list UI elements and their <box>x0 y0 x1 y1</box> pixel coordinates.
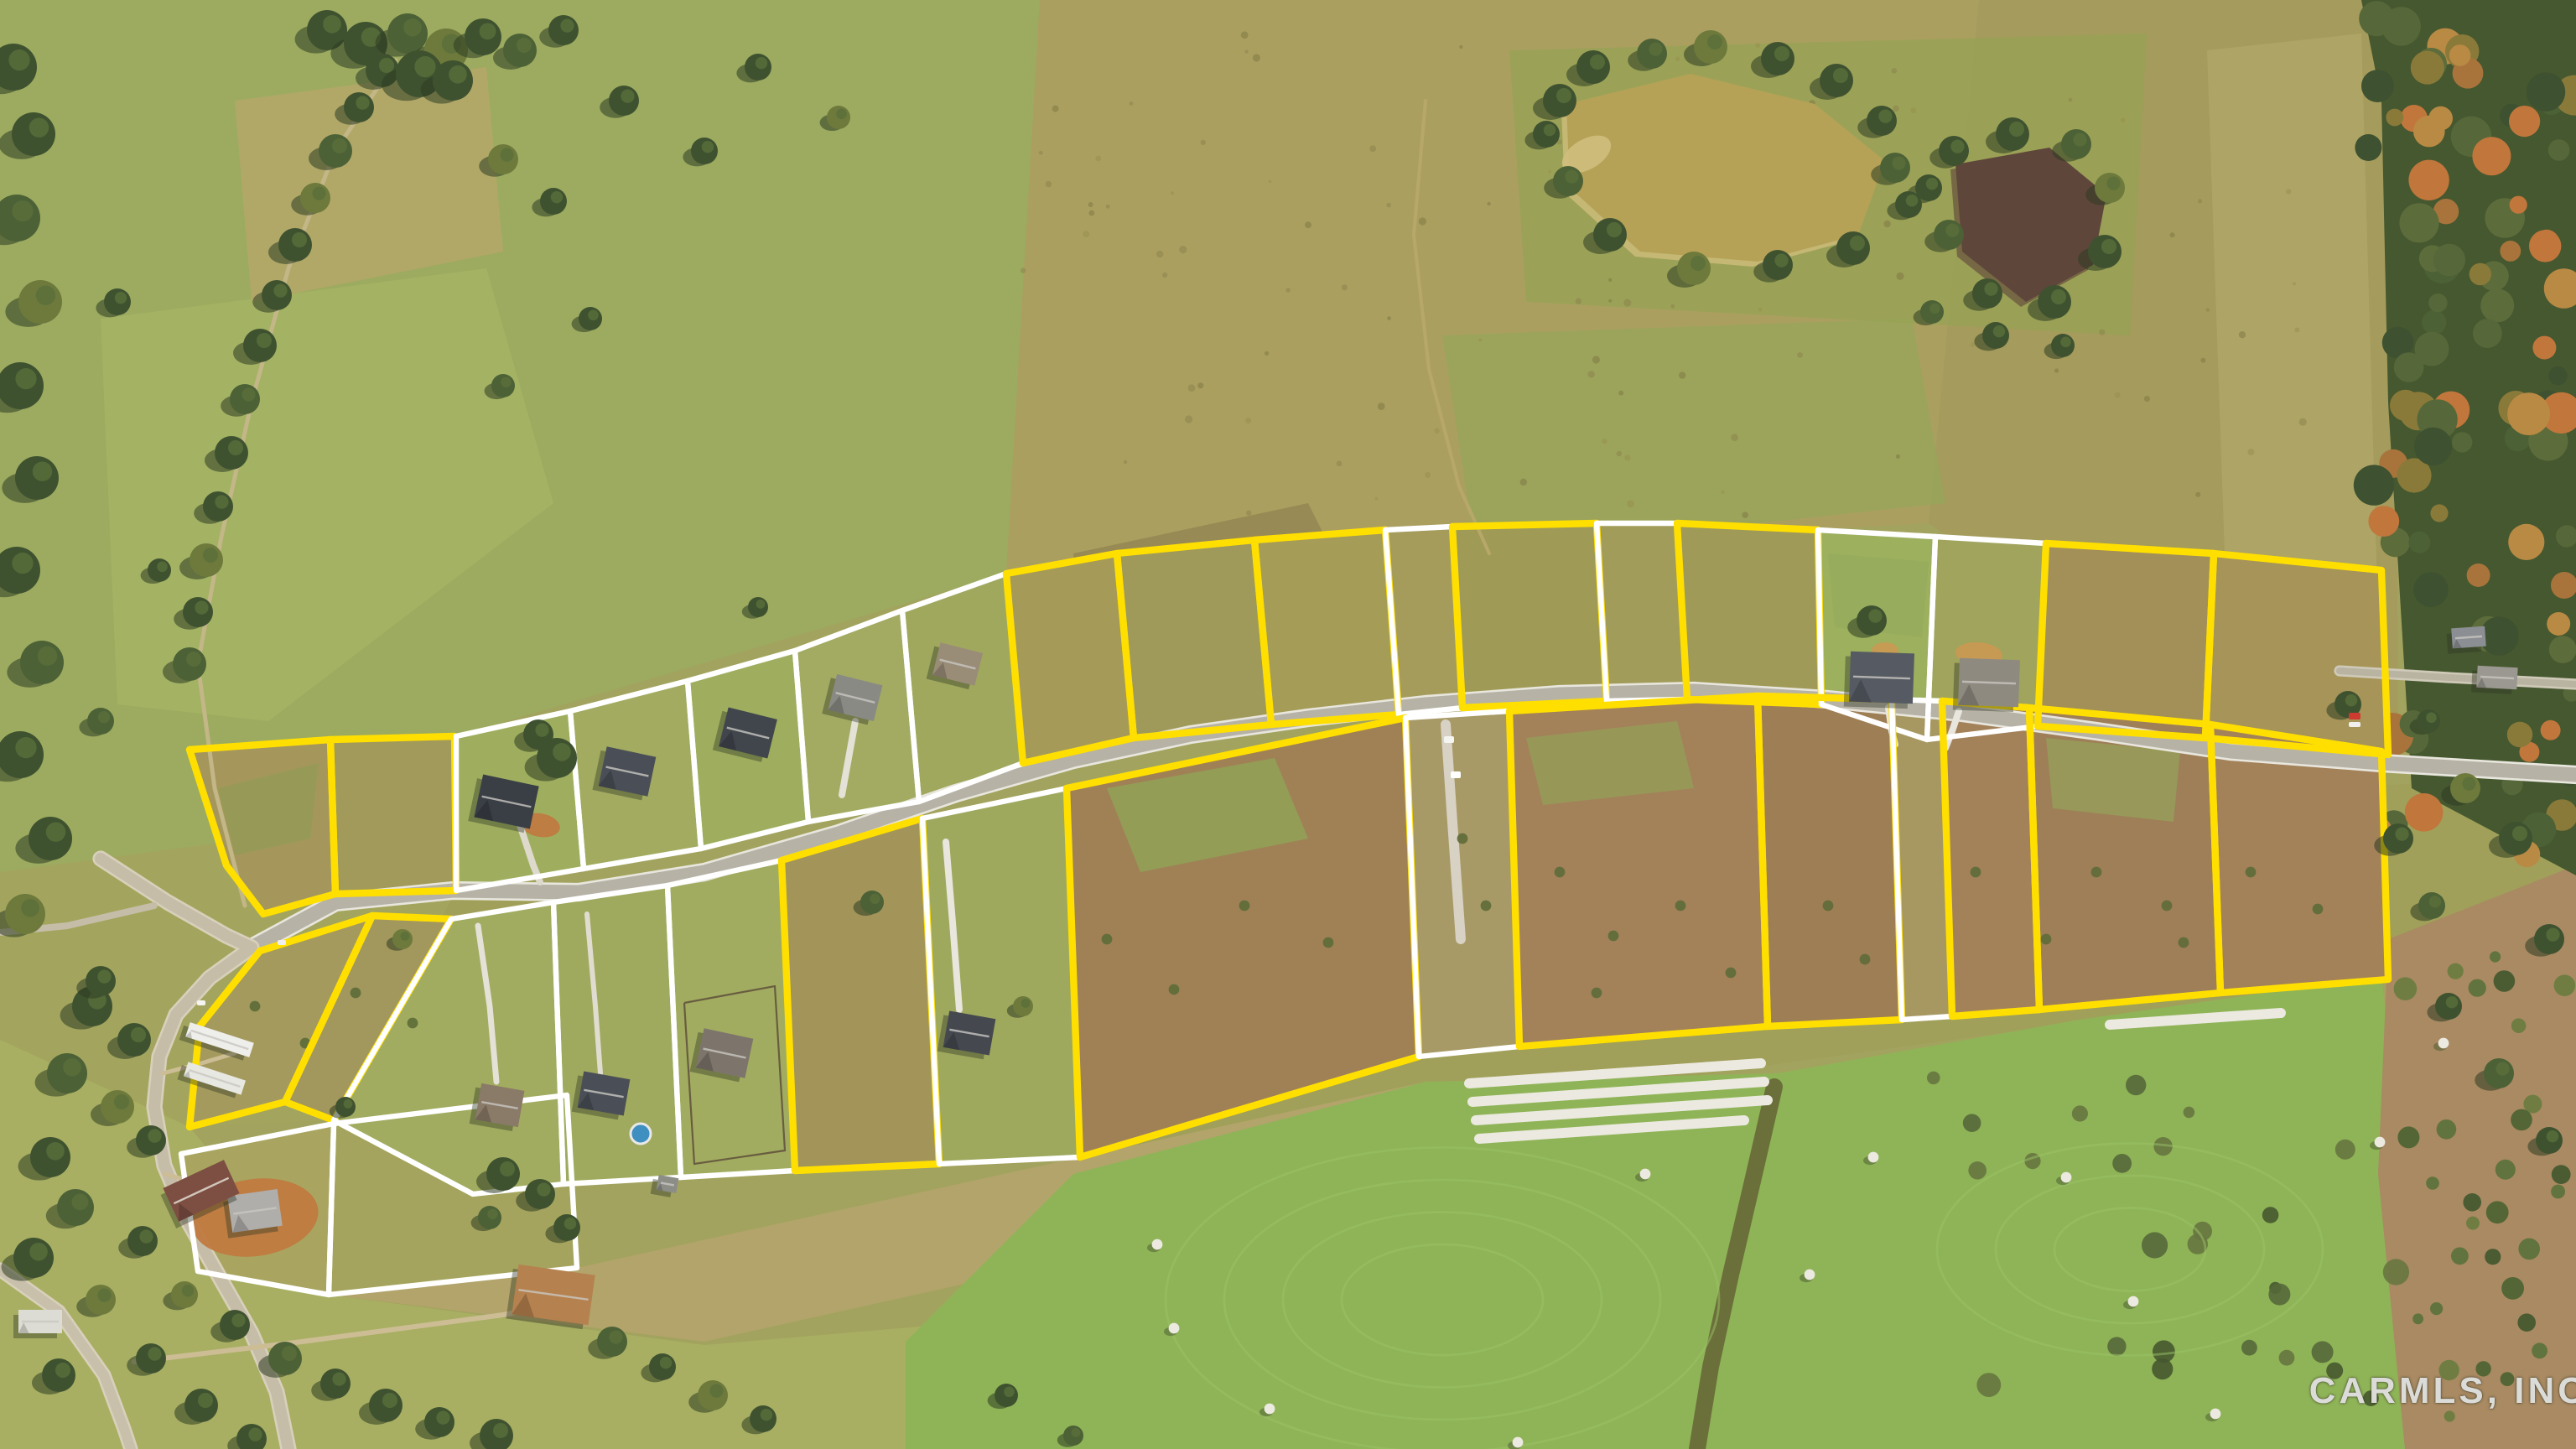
forest-canopy <box>2452 432 2472 452</box>
tree-highlight <box>228 440 243 455</box>
hillside-shrubs <box>2412 1313 2423 1324</box>
vehicle <box>2349 722 2360 727</box>
tree-highlight <box>2051 289 2066 304</box>
shrub <box>1323 937 1334 948</box>
hillside-shrubs <box>2463 1193 2481 1212</box>
forest-canopy <box>2422 310 2446 335</box>
tree-highlight <box>139 1230 153 1244</box>
tree-highlight <box>1707 34 1722 49</box>
tree-highlight <box>323 15 341 34</box>
tree-highlight <box>1926 178 1938 190</box>
top-field-speckle <box>2239 331 2246 338</box>
tree-highlight <box>1590 55 1605 70</box>
forest-canopy <box>2470 263 2491 285</box>
tree-highlight <box>382 1393 397 1408</box>
tree-highlight <box>1607 222 1622 237</box>
top-field-speckle <box>1179 246 1187 253</box>
top-field-speckle <box>1369 145 1376 152</box>
tree-highlight <box>1774 254 1788 267</box>
tree-highlight <box>356 96 369 110</box>
top-field-speckle <box>1618 391 1623 396</box>
forest-canopy <box>2480 616 2518 655</box>
tree-highlight <box>332 138 347 153</box>
hillside-shrubs <box>2394 977 2418 1000</box>
tree-highlight <box>414 56 435 77</box>
hay-bale <box>2438 1038 2449 1049</box>
tree-highlight <box>756 600 766 609</box>
tree-highlight <box>114 1094 129 1109</box>
hillside-shrubs <box>2448 963 2464 979</box>
scrub-under-forest <box>1968 1161 1987 1180</box>
tree-highlight <box>12 200 33 221</box>
tree-highlight <box>2073 133 2086 147</box>
forest-canopy <box>2413 572 2449 607</box>
top-field-speckle <box>2206 308 2210 311</box>
shrub <box>1971 867 1981 878</box>
top-field-speckle <box>1459 45 1462 49</box>
house-HD <box>937 1010 996 1060</box>
tree-highlight <box>535 724 548 737</box>
hillside-shrubs <box>2466 1217 2480 1230</box>
tree-highlight <box>15 737 36 758</box>
tree-highlight <box>1544 124 1555 136</box>
hillside-shrubs <box>2501 1277 2524 1300</box>
tree-highlight <box>1072 1428 1081 1437</box>
shrub <box>1823 901 1834 911</box>
hay-bale <box>1640 1169 1651 1180</box>
tree-highlight <box>401 932 410 941</box>
shrub <box>2162 901 2173 911</box>
top-field-speckle <box>1244 49 1248 53</box>
top-field-speckle <box>1624 454 1630 460</box>
forest-canopy <box>2547 612 2570 636</box>
tree-highlight <box>1945 224 1959 237</box>
tree-highlight <box>36 286 55 305</box>
shrub <box>2246 867 2257 878</box>
scrub-under-forest <box>2262 1207 2279 1223</box>
top-field-speckle <box>2099 330 2105 335</box>
top-field-speckle <box>1576 298 1582 304</box>
mls-watermark: CARMLS, INC <box>2309 1370 2576 1412</box>
forest-canopy <box>2472 137 2511 175</box>
tree-highlight <box>537 1183 550 1197</box>
scrub-under-forest <box>1927 1072 1940 1085</box>
tree-highlight <box>46 1142 65 1161</box>
tree-highlight <box>195 601 208 615</box>
forest-canopy <box>2428 293 2447 312</box>
scrub-under-forest <box>2241 1340 2257 1356</box>
lot-green-patch <box>2046 738 2180 822</box>
tree-highlight <box>517 38 532 53</box>
forest-canopy <box>2507 392 2550 435</box>
tree-highlight <box>2462 777 2475 791</box>
shrub <box>1457 834 1468 844</box>
hillside-shrubs <box>2494 970 2516 992</box>
forest-canopy <box>2507 722 2532 747</box>
top-field-speckle <box>2069 98 2073 102</box>
tree-highlight <box>756 57 767 69</box>
tree-highlight <box>2547 1130 2558 1142</box>
hillside-shrubs <box>2486 1201 2509 1223</box>
forest-canopy <box>2541 720 2561 740</box>
top-field-speckle <box>2054 368 2059 372</box>
tree-highlight <box>157 562 168 573</box>
top-field-speckle <box>1478 338 1482 341</box>
top-field-speckle <box>1088 202 1093 207</box>
forest-canopy <box>2414 428 2452 465</box>
tree-highlight <box>312 187 325 200</box>
top-field-speckle <box>1891 68 1897 74</box>
tree-highlight <box>1906 195 1918 206</box>
top-field-speckle <box>1670 304 1675 309</box>
top-field-speckle <box>2293 282 2296 285</box>
tree-highlight <box>436 1411 449 1425</box>
top-field-speckle <box>1387 316 1391 320</box>
hillside-shrubs <box>2552 1165 2571 1184</box>
tree-highlight <box>1004 1387 1015 1398</box>
shrub <box>250 1001 261 1012</box>
tree-highlight <box>2512 826 2527 841</box>
hay-bale <box>2061 1172 2072 1183</box>
tree-highlight <box>203 548 218 563</box>
hay-bale <box>2128 1296 2139 1307</box>
tree-highlight <box>761 1409 772 1420</box>
tree-highlight <box>2426 713 2437 724</box>
forest-canopy <box>2405 793 2444 832</box>
top-field-speckle <box>1374 497 1378 501</box>
tree-highlight <box>487 1209 498 1220</box>
top-field-speckle <box>2115 392 2121 398</box>
tree-highlight <box>29 118 49 138</box>
house-HB <box>572 1070 631 1120</box>
forest-canopy <box>2508 524 2544 560</box>
tree-highlight <box>2395 828 2408 841</box>
top-field-speckle <box>1386 203 1391 208</box>
tree-highlight <box>186 652 201 667</box>
shrub <box>1239 901 1250 911</box>
top-field-speckle <box>1188 384 1196 392</box>
tree-highlight <box>1929 304 1940 314</box>
top-field-speckle <box>1130 101 1134 106</box>
tree-highlight <box>2101 239 2116 254</box>
forest-canopy <box>2408 532 2430 553</box>
lot-fill-B6 <box>1942 701 2039 1016</box>
top-field-speckle <box>1241 31 1249 39</box>
tree-highlight <box>1878 110 1892 123</box>
tree-highlight <box>332 1373 345 1386</box>
structure-house-tan <box>506 1264 595 1330</box>
top-field-speckle <box>1617 451 1622 456</box>
top-field-speckle <box>1910 107 1916 113</box>
hillside-shrubs <box>2426 1176 2439 1190</box>
lot-fill-B2 <box>1405 711 1519 1057</box>
forest-canopy <box>2368 506 2399 537</box>
shrub <box>1169 984 1180 995</box>
forest-canopy <box>2361 70 2394 102</box>
forest-canopy <box>2386 109 2403 127</box>
hillside-shrubs <box>2495 1160 2516 1180</box>
tree-highlight <box>115 292 127 304</box>
tree-highlight <box>55 1363 70 1378</box>
tree-highlight <box>29 1243 48 1261</box>
structure-shed-white <box>13 1310 62 1338</box>
tree-highlight <box>131 1027 146 1042</box>
hillside-shrubs <box>2517 1313 2536 1332</box>
top-field-speckle <box>1095 156 1101 162</box>
tree-highlight <box>1850 236 1865 251</box>
tree-highlight <box>2060 337 2071 348</box>
hay-bale <box>2375 1137 2386 1148</box>
tree-highlight <box>148 1130 161 1143</box>
top-field-speckle <box>1883 221 1890 227</box>
tree-highlight <box>709 1384 723 1398</box>
top-field-speckle <box>1156 251 1163 257</box>
tree-highlight <box>8 49 29 70</box>
top-field-speckle <box>1758 308 1763 312</box>
tree-highlight <box>198 1393 213 1408</box>
scrub-under-forest <box>2112 1154 2132 1173</box>
vehicle <box>2349 713 2360 719</box>
tree-highlight <box>21 899 39 917</box>
top-field-speckle <box>1197 382 1203 388</box>
top-field-speckle <box>1896 273 1903 280</box>
forest-canopy <box>2548 139 2570 161</box>
tree-highlight <box>72 1194 89 1211</box>
scrub-under-forest <box>2142 1232 2168 1258</box>
vehicle <box>278 940 286 945</box>
tree-highlight <box>2009 122 2024 137</box>
tree-highlight <box>702 141 714 153</box>
tree-highlight <box>1556 88 1571 103</box>
scrub-under-forest <box>2279 1350 2295 1366</box>
forest-canopy <box>2411 51 2444 85</box>
tree-highlight <box>621 90 634 103</box>
tree-highlight <box>273 284 287 298</box>
forest-canopy <box>2467 563 2490 587</box>
tree-highlight <box>98 711 110 723</box>
hay-bale <box>1152 1239 1163 1250</box>
tree-highlight <box>870 894 880 905</box>
tree-highlight <box>449 65 467 84</box>
top-field-speckle <box>1602 439 1607 444</box>
tree-highlight <box>836 109 847 120</box>
hay-bale <box>1513 1437 1524 1448</box>
top-field-speckle <box>1548 170 1551 174</box>
scrub-under-forest <box>1976 1373 2001 1397</box>
top-field-speckle <box>1434 428 1439 434</box>
top-field-speckle <box>1039 151 1043 155</box>
scrub-under-forest <box>2107 1337 2126 1355</box>
top-field-speckle <box>2286 189 2291 194</box>
tree-highlight <box>248 1428 262 1441</box>
forest-canopy <box>2408 160 2449 200</box>
tree-highlight <box>182 1285 194 1296</box>
tree-highlight <box>500 1161 515 1176</box>
tree-highlight <box>215 496 228 509</box>
tree-highlight <box>2429 896 2441 907</box>
tree-highlight <box>588 310 599 321</box>
top-field-speckle <box>1675 56 1680 61</box>
tree-highlight <box>33 462 52 481</box>
scrub-under-forest <box>2072 1105 2088 1121</box>
tree-highlight <box>1833 68 1848 83</box>
hillside-shrubs <box>2518 1239 2540 1260</box>
top-field-speckle <box>1083 231 1089 237</box>
top-field-speckle <box>2195 492 2200 497</box>
top-field-speckle <box>1742 512 1748 518</box>
shrub <box>351 988 361 999</box>
hillside-shrubs <box>2451 1247 2469 1265</box>
tree-highlight <box>1649 43 1662 56</box>
tree-highlight <box>1690 256 1706 271</box>
scrub-under-forest <box>2383 1259 2409 1285</box>
tree-highlight <box>1868 610 1882 623</box>
aerial-photo-stage: CARMLS, INC <box>0 0 2576 1449</box>
forest-canopy <box>2480 288 2514 322</box>
top-field-speckle <box>1755 43 1760 48</box>
top-field-speckle <box>1046 181 1052 188</box>
top-field-speckle <box>1419 217 1426 225</box>
tree-highlight <box>344 1099 353 1109</box>
tree-highlight <box>292 232 307 247</box>
top-field-speckle <box>1679 371 1685 378</box>
shrub <box>1555 867 1566 878</box>
scrub-under-forest <box>2335 1140 2355 1160</box>
forest-canopy <box>2527 72 2565 111</box>
hillside-shrubs <box>2397 1126 2419 1148</box>
scrub-under-forest <box>2268 1284 2290 1306</box>
lot-fill-A2 <box>1117 540 1271 738</box>
tree-highlight <box>1993 325 2005 337</box>
top-field-speckle <box>1106 205 1110 209</box>
tree-highlight <box>148 1348 161 1361</box>
top-field-speckle <box>1425 472 1431 478</box>
forest-canopy <box>2430 504 2448 522</box>
vehicle <box>197 1000 205 1005</box>
above-ground-pool <box>631 1124 651 1144</box>
top-field-speckle <box>1162 273 1167 278</box>
scrub-under-forest <box>2184 1107 2195 1119</box>
top-field-speckle <box>2294 327 2299 332</box>
top-field-speckle <box>2121 117 2126 122</box>
top-field-speckle <box>1592 356 1600 363</box>
lot-fill-Y5 <box>782 818 939 1171</box>
top-field-speckle <box>1124 460 1127 464</box>
shrub <box>1481 901 1492 911</box>
shrub <box>408 1018 418 1029</box>
top-field-speckle <box>1342 284 1348 290</box>
top-field-speckle <box>1021 267 1026 273</box>
forest-canopy <box>2394 352 2424 382</box>
tree-highlight <box>500 148 513 162</box>
top-field-speckle <box>1337 460 1343 466</box>
top-field-speckle <box>1721 491 1724 494</box>
tree-highlight <box>1774 46 1789 61</box>
tree-highlight <box>257 333 272 348</box>
tree-highlight <box>501 377 512 388</box>
forest-canopy <box>2413 116 2445 148</box>
forest-canopy <box>2549 636 2576 663</box>
top-field-speckle <box>1896 454 1900 459</box>
vehicle <box>1444 736 1454 743</box>
top-field-speckle <box>1246 510 1251 515</box>
tree-highlight <box>493 1423 508 1438</box>
tree-highlight <box>560 19 574 33</box>
forest-canopy <box>2532 336 2556 360</box>
top-field-speckle <box>1608 299 1612 303</box>
top-field-speckle <box>1268 179 1271 183</box>
shrub <box>1726 968 1737 979</box>
tree-highlight <box>63 1058 81 1077</box>
forest-canopy <box>2433 244 2465 276</box>
top-field-speckle <box>1185 415 1192 423</box>
hay-bale <box>1805 1270 1815 1280</box>
lot-fill-A6 <box>1597 523 1687 701</box>
top-field-speckle <box>2200 358 2205 363</box>
top-field-speckle <box>1378 402 1385 410</box>
forest-canopy <box>2473 319 2502 348</box>
lot-fill-B4 <box>1758 696 1902 1026</box>
aerial-photo <box>0 0 2576 1449</box>
top-field-speckle <box>1487 202 1490 205</box>
forest-canopy <box>2449 44 2471 66</box>
shrub <box>1608 931 1619 942</box>
tree-highlight <box>553 743 571 761</box>
top-field-speckle <box>1265 351 1269 356</box>
hillside-shrubs <box>2511 1018 2527 1033</box>
tree-highlight <box>2546 928 2559 942</box>
top-field-speckle <box>1587 371 1594 377</box>
vehicle <box>1451 771 1461 778</box>
top-field-speckle <box>1608 278 1612 282</box>
top-field-speckle <box>1245 418 1251 423</box>
tree-highlight <box>97 1289 111 1302</box>
shrub <box>2179 937 2189 948</box>
top-field-speckle <box>1520 479 1527 486</box>
forest-canopy <box>2399 203 2438 242</box>
structure-forest-building <box>2471 665 2518 694</box>
top-field-speckle <box>1731 434 1738 441</box>
tree-highlight <box>2345 694 2357 706</box>
house-HF <box>1953 658 2020 713</box>
lot-fill-A7 <box>1677 523 1821 704</box>
shrub <box>1102 934 1113 945</box>
hay-bale <box>1265 1404 1275 1415</box>
tree-highlight <box>2446 996 2458 1008</box>
house-HE <box>1844 651 1914 709</box>
top-field-speckle <box>2299 418 2307 426</box>
hillside-shrubs <box>2532 1343 2547 1358</box>
shrub <box>1592 988 1602 999</box>
forest-canopy <box>2509 106 2540 137</box>
house-HA <box>470 1083 525 1132</box>
tree-highlight <box>2495 1062 2509 1076</box>
scrub-under-forest <box>2153 1340 2175 1363</box>
hillside-shrubs <box>2469 979 2486 997</box>
tree-highlight <box>12 553 33 574</box>
forest-canopy <box>2381 7 2420 45</box>
forest-canopy <box>2354 465 2394 505</box>
scrub-under-forest <box>2126 1075 2146 1095</box>
tree-highlight <box>2106 177 2120 190</box>
top-field-speckle <box>1052 106 1059 112</box>
hillside-shrubs <box>2554 974 2576 996</box>
tree-highlight <box>1984 283 1997 296</box>
hillside-shrubs <box>2444 1410 2455 1421</box>
hay-bale <box>2210 1409 2221 1420</box>
shrub <box>1675 901 1686 911</box>
tree-highlight <box>97 970 111 984</box>
